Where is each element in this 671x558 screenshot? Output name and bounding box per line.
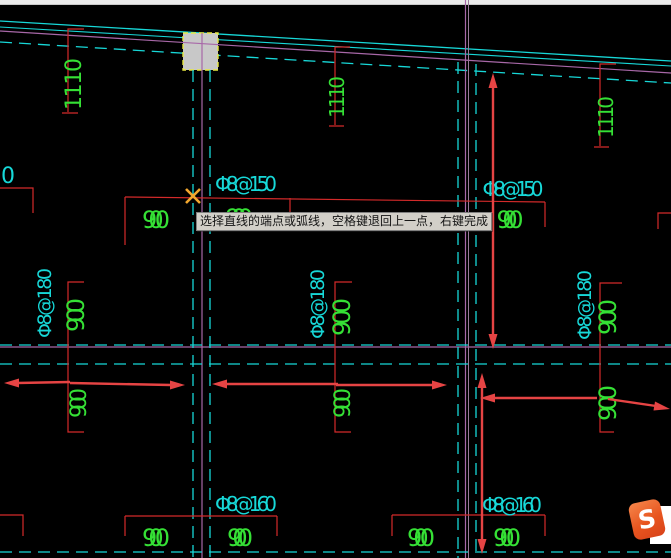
cad-application-window: 0 Φ8@150 Φ8@150 Φ8@180 Φ8@180 Φ8@180 Φ8@…	[0, 0, 671, 558]
dim-label-900-mid-left[interactable]: 900	[62, 298, 90, 332]
dim-label-1110-left[interactable]: 1110	[62, 58, 87, 110]
cad-drawing-canvas[interactable]: 0 Φ8@150 Φ8@150 Φ8@180 Φ8@180 Φ8@180 Φ8@…	[0, 0, 671, 558]
rebar-label-cut-left[interactable]: 0	[1, 164, 15, 189]
watermark-logo: S	[629, 497, 671, 547]
rebar-arrow-horizontal-left-pair[interactable]	[4, 379, 185, 390]
rebar-label-top-right[interactable]: Φ8@150	[483, 177, 544, 201]
logo-badge-icon: S	[628, 498, 667, 541]
rebar-arrow-horizontal-mid-pair[interactable]	[212, 380, 447, 390]
dim-bracket-right-edge[interactable]	[658, 213, 671, 229]
dim-label-900-top-left[interactable]: 900	[142, 206, 170, 234]
rebar-label-mid-right[interactable]: Φ8@180	[574, 270, 596, 340]
dim-bracket-top-left-edge[interactable]	[0, 188, 33, 213]
dim-label-900-low-left[interactable]: 900	[67, 388, 92, 418]
rebar-label-mid-center[interactable]: Φ8@180	[307, 269, 329, 339]
dim-label-1110-right[interactable]: 1110	[594, 96, 618, 138]
rebar-arrow-horizontal-right-inward[interactable]	[480, 394, 597, 403]
dim-label-900-low-right[interactable]: 900	[594, 385, 622, 421]
dim-label-900-top-right[interactable]: 900	[497, 206, 524, 234]
dim-label-900-mid-right[interactable]: 900	[594, 299, 622, 335]
logo-letter: S	[636, 505, 657, 534]
rebar-label-top-left[interactable]: Φ8@150	[215, 172, 277, 196]
dim-label-900-low-center[interactable]: 900	[331, 388, 356, 418]
dim-label-1110-mid[interactable]: 1110	[325, 76, 349, 118]
dim-label-900-mid-center[interactable]: 900	[328, 298, 356, 336]
dim-bracket-bottom-left-edge[interactable]	[0, 515, 23, 536]
column-block-highlighted[interactable]	[183, 33, 218, 70]
rebar-label-mid-left[interactable]: Φ8@180	[34, 268, 56, 338]
rebar-label-bottom-left[interactable]: Φ8@160	[215, 492, 277, 516]
command-tooltip: 选择直线的端点或弧线，空格键退回上一点，右键完成	[196, 212, 492, 231]
rebar-arrow-vertical-lower-right[interactable]	[478, 373, 487, 554]
dim-label-900-bot-4[interactable]: 900	[493, 524, 521, 552]
rebar-label-bottom-right[interactable]: Φ8@160	[482, 493, 542, 517]
dim-label-900-bot-1[interactable]: 900	[142, 524, 170, 552]
dim-label-900-bot-2[interactable]: 900	[227, 524, 253, 552]
dim-label-900-bot-3[interactable]: 900	[407, 524, 435, 552]
